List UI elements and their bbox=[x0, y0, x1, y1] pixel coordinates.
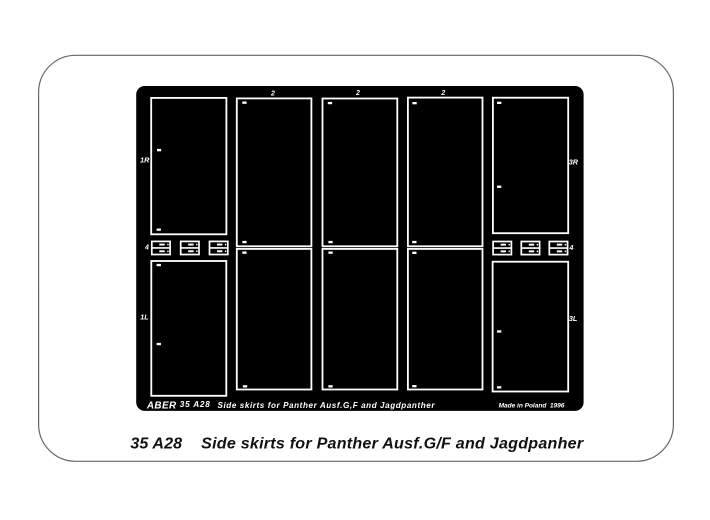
svg-text:Made in Poland 1996: Made in Poland 1996 bbox=[499, 403, 565, 410]
svg-text:35 A28: 35 A28 bbox=[130, 434, 182, 452]
svg-text:1L: 1L bbox=[140, 312, 148, 321]
svg-text:1R: 1R bbox=[140, 156, 150, 165]
svg-text:ABER: ABER bbox=[146, 400, 177, 411]
svg-text:3L: 3L bbox=[569, 314, 577, 323]
svg-text:Side skirts for Panther Ausf.G: Side skirts for Panther Ausf.G,F and Jag… bbox=[218, 401, 436, 410]
svg-text:Side skirts for Panther Ausf.G: Side skirts for Panther Ausf.G/F and Jag… bbox=[201, 434, 584, 452]
svg-text:3R: 3R bbox=[569, 157, 579, 166]
svg-text:2: 2 bbox=[270, 91, 275, 98]
svg-text:4: 4 bbox=[568, 245, 573, 252]
svg-text:4: 4 bbox=[144, 244, 149, 251]
svg-text:2: 2 bbox=[440, 90, 445, 97]
svg-text:2: 2 bbox=[355, 90, 360, 97]
svg-text:35 A28: 35 A28 bbox=[180, 400, 210, 409]
